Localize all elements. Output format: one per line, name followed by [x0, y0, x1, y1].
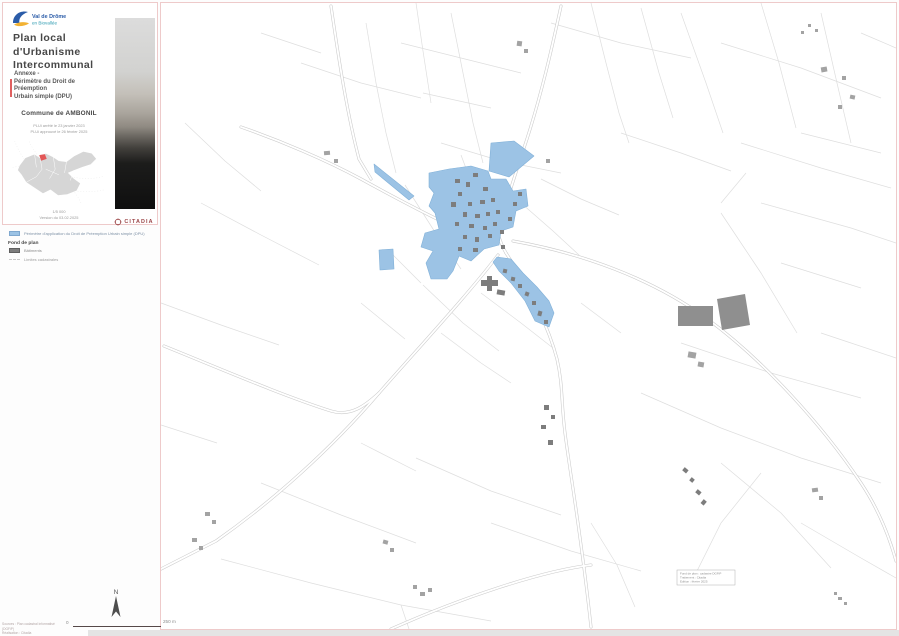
- logo-text-line2: en Biovallée: [32, 21, 57, 26]
- road-casings: [161, 6, 896, 629]
- scale-and-version: 1/5 000 Version du 03.02.2025: [3, 209, 115, 221]
- attribution-line: Réalisation : Citadia: [2, 631, 64, 636]
- approval-line: PLUi approuvé le 26 février 2025: [3, 129, 115, 135]
- dpu-zones: [374, 141, 554, 327]
- scalebar-line: [73, 626, 161, 628]
- church-building: [481, 276, 498, 291]
- buildings-layer: [192, 24, 855, 605]
- attribution-line: Sources : Plan cadastral informatisé (DG…: [2, 622, 64, 631]
- version-text: Version du 03.02.2025: [3, 215, 115, 221]
- legend-item-dpu: Périmètre d'application du Droit de Prée…: [9, 231, 145, 236]
- approval-dates: PLUi arrêté le 23 janvier 2023 PLUi appr…: [3, 123, 115, 134]
- north-label: N: [105, 589, 127, 596]
- dpu-swatch: [9, 231, 20, 236]
- limites-label: Limites cadastrales: [24, 257, 58, 262]
- batiments-label: Bâtiments: [24, 248, 42, 253]
- map-attribution: Sources : Plan cadastral informatisé (DG…: [2, 622, 64, 636]
- val-de-drome-logo: Val de Drôme en Biovallée: [9, 8, 107, 30]
- limites-swatch: [9, 259, 20, 260]
- dpu-zone-north: [489, 141, 534, 177]
- citadia-wordmark: CITADIA: [124, 219, 153, 225]
- map-credit-box: Fond de plan : cadastre DGFiP Traitement…: [677, 570, 735, 585]
- citadia-logo-icon: [114, 218, 122, 226]
- intercommunal-territory: [18, 151, 97, 195]
- batiments-swatch: [9, 248, 20, 253]
- dpu-zone-small-parcel: [379, 249, 394, 270]
- legend-item-batiments: Bâtiments: [9, 248, 42, 253]
- annexe-accent-bar: [10, 79, 12, 97]
- road-fills: [161, 6, 896, 629]
- dpu-label: Périmètre d'application du Droit de Prée…: [24, 231, 145, 236]
- commune-name: Commune de AMBONIL: [3, 110, 115, 117]
- north-arrow-icon: [110, 596, 122, 618]
- citadia-logo: CITADIA: [109, 218, 159, 226]
- legend-item-limites: Limites cadastrales: [9, 257, 58, 262]
- legend-heading-fond: Fond de plan: [8, 241, 38, 246]
- dpu-zone-west-wedge: [374, 164, 414, 200]
- scalebar-max-label: 250 m: [163, 619, 176, 624]
- scalebar-zero-label: 0: [66, 620, 69, 625]
- credit-line-3: Edition : février 2025: [680, 580, 708, 584]
- cadastral-map: Fond de plan : cadastre DGFiP Traitement…: [161, 3, 896, 629]
- logo-text-line1: Val de Drôme: [32, 14, 66, 20]
- title-block: Val de Drôme en Biovallée Plan local d'U…: [2, 2, 158, 225]
- plu-map-sheet: Fond de plan : cadastre DGFiP Traitement…: [0, 0, 899, 636]
- landscape-photo-strip: [115, 18, 155, 209]
- map-canvas: Fond de plan : cadastre DGFiP Traitement…: [160, 2, 897, 630]
- parcel-lines: [161, 3, 896, 629]
- territory-inset-map: [12, 141, 104, 203]
- logo-swoosh-icon: [13, 11, 28, 23]
- page-margin-strip: [88, 630, 899, 636]
